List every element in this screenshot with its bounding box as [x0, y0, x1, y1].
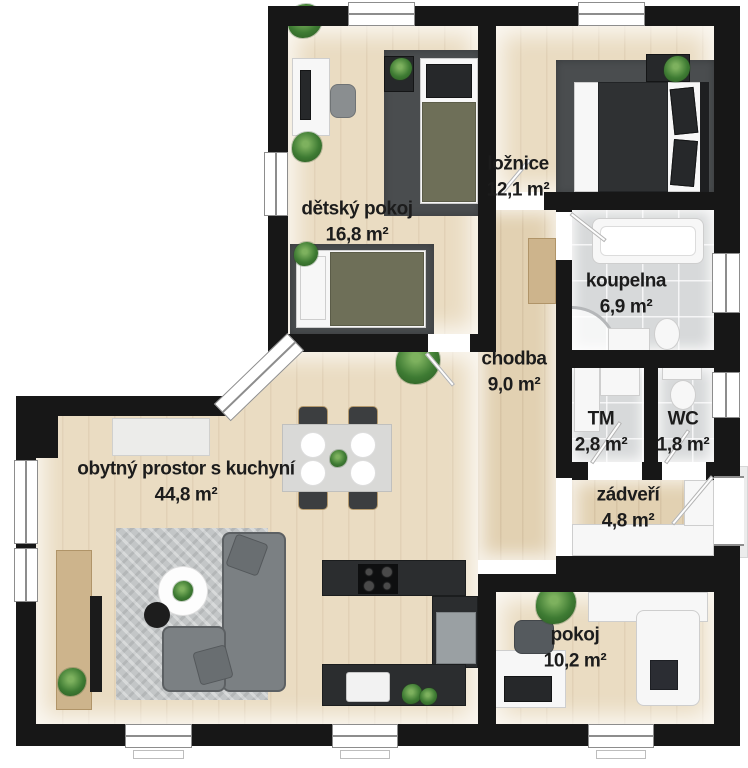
fridge [436, 612, 476, 664]
bathroom-vanity [608, 328, 650, 352]
room-area: 12,1 m² [487, 177, 550, 203]
door-wc [662, 462, 706, 480]
wall-bedroom-bottom [544, 192, 714, 210]
childrens-desk [292, 58, 330, 136]
double-bed-blanket [598, 82, 668, 192]
window-bedroom-top [578, 2, 645, 26]
floor-plan: dětský pokoj 16,8 m² ložnice 12,1 m² kou… [0, 0, 748, 768]
window-living-left-2 [14, 548, 38, 602]
room-name: obytný prostor s kuchyní [77, 456, 294, 482]
room-label-pokoj: pokoj 10,2 m² [544, 622, 607, 673]
window-sill-bottom-3 [596, 750, 646, 759]
door-childrens [428, 334, 470, 352]
room-label-loznice: ložnice 12,1 m² [487, 151, 550, 202]
room-label-chodba: chodba 9,0 m² [481, 346, 546, 397]
room-area: 6,9 m² [586, 294, 666, 320]
window-childrens-left [264, 152, 288, 216]
door-bathroom [556, 212, 572, 260]
bed2-blanket [330, 252, 424, 326]
wall-bottom-living [16, 724, 498, 746]
window-living-bottom-1 [125, 724, 192, 748]
sideboard [112, 418, 210, 456]
room-name: pokoj [544, 622, 607, 648]
tv-screen [90, 596, 102, 692]
kitchen-counter-bottom [322, 664, 466, 706]
washing-machine [600, 364, 640, 396]
room-area: 9,0 m² [481, 372, 546, 398]
room-area: 4,8 m² [597, 508, 660, 534]
double-bed-pillow-2 [670, 139, 698, 187]
wall-top [268, 6, 740, 26]
room-label-wc: WC 1,8 m² [657, 406, 710, 457]
room-name: koupelna [586, 268, 666, 294]
window-bathroom [712, 253, 740, 313]
daybed-sofa [636, 610, 700, 706]
room-label-obytny-prostor: obytný prostor s kuchyní 44,8 m² [77, 456, 294, 507]
room-area: 2,8 m² [575, 432, 628, 458]
daybed-pillow [650, 660, 678, 690]
plate-2 [350, 432, 376, 458]
door-tm [588, 462, 642, 480]
room-label-detsky-pokoj: dětský pokoj 16,8 m² [301, 196, 412, 247]
room-label-koupelna: koupelna 6,9 m² [586, 268, 666, 319]
kitchen-sink [346, 672, 390, 702]
room-area: 44,8 m² [77, 482, 294, 508]
toilet-bathroom [654, 318, 680, 350]
cooktop [358, 564, 398, 594]
opening-zadveri [556, 478, 572, 556]
room-area: 16,8 m² [301, 222, 412, 248]
window-living-left-1 [14, 460, 38, 544]
bed1-pillow [426, 64, 472, 98]
bathtub-inner [600, 226, 696, 256]
room-area: 1,8 m² [657, 432, 710, 458]
wall-zadveri-bottom [556, 556, 714, 576]
room-name: ložnice [487, 151, 550, 177]
entry-door [714, 476, 744, 546]
wall-bathroom-bottom [556, 350, 714, 368]
wall-pokoj-left [478, 574, 496, 746]
window-wc [712, 372, 740, 418]
hall-wardrobe [528, 238, 556, 304]
side-table-black [144, 602, 170, 628]
window-childrens-top [348, 2, 415, 26]
room-name: TM [575, 406, 628, 432]
bed1-blanket [422, 102, 476, 202]
plate-1 [300, 432, 326, 458]
wall-pokoj-top [478, 574, 714, 592]
window-sill-bottom-2 [340, 750, 390, 759]
window-sill-bottom-1 [133, 750, 184, 759]
room-area: 10,2 m² [544, 648, 607, 674]
printer [504, 676, 552, 702]
room-name: zádveří [597, 482, 660, 508]
desk-monitor [300, 70, 311, 120]
room-label-tm: TM 2,8 m² [575, 406, 628, 457]
room-name: dětský pokoj [301, 196, 412, 222]
window-living-bottom-2 [332, 724, 398, 748]
plate-3 [300, 460, 326, 486]
window-pokoj-bottom [588, 724, 654, 748]
room-label-zadveri: zádveří 4,8 m² [597, 482, 660, 533]
double-bed-headboard [700, 82, 709, 192]
room-name: WC [657, 406, 710, 432]
double-bed-pillow-1 [670, 87, 699, 135]
plate-4 [350, 460, 376, 486]
room-name: chodba [481, 346, 546, 372]
desk-chair [330, 84, 356, 118]
